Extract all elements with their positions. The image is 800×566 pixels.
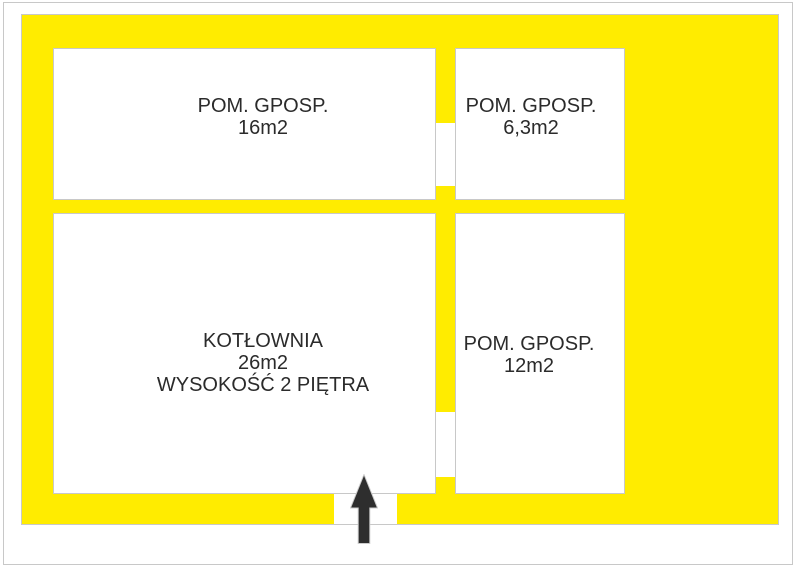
room-name: POM. GPOSP. [466,95,597,117]
room-area: 26m2 [157,352,369,374]
room-label-16m2: POM. GPOSP. 16m2 [198,95,329,139]
room-label-12m2: POM. GPOSP. 12m2 [464,333,595,377]
room-name: POM. GPOSP. [198,95,329,117]
room-name: KOTŁOWNIA [157,330,369,352]
room-name: POM. GPOSP. [464,333,595,355]
door-opening-right-room [436,412,455,477]
room-label-63m2: POM. GPOSP. 6,3m2 [466,95,597,139]
room-area: 6,3m2 [466,117,597,139]
entrance-arrow-icon [350,474,378,544]
room-area: 16m2 [198,117,329,139]
door-opening-top-rooms [436,123,455,186]
room-note: WYSOKOŚĆ 2 PIĘTRA [157,374,369,396]
room-label-kotlownia: KOTŁOWNIA 26m2 WYSOKOŚĆ 2 PIĘTRA [157,330,369,396]
room-area: 12m2 [464,355,595,377]
